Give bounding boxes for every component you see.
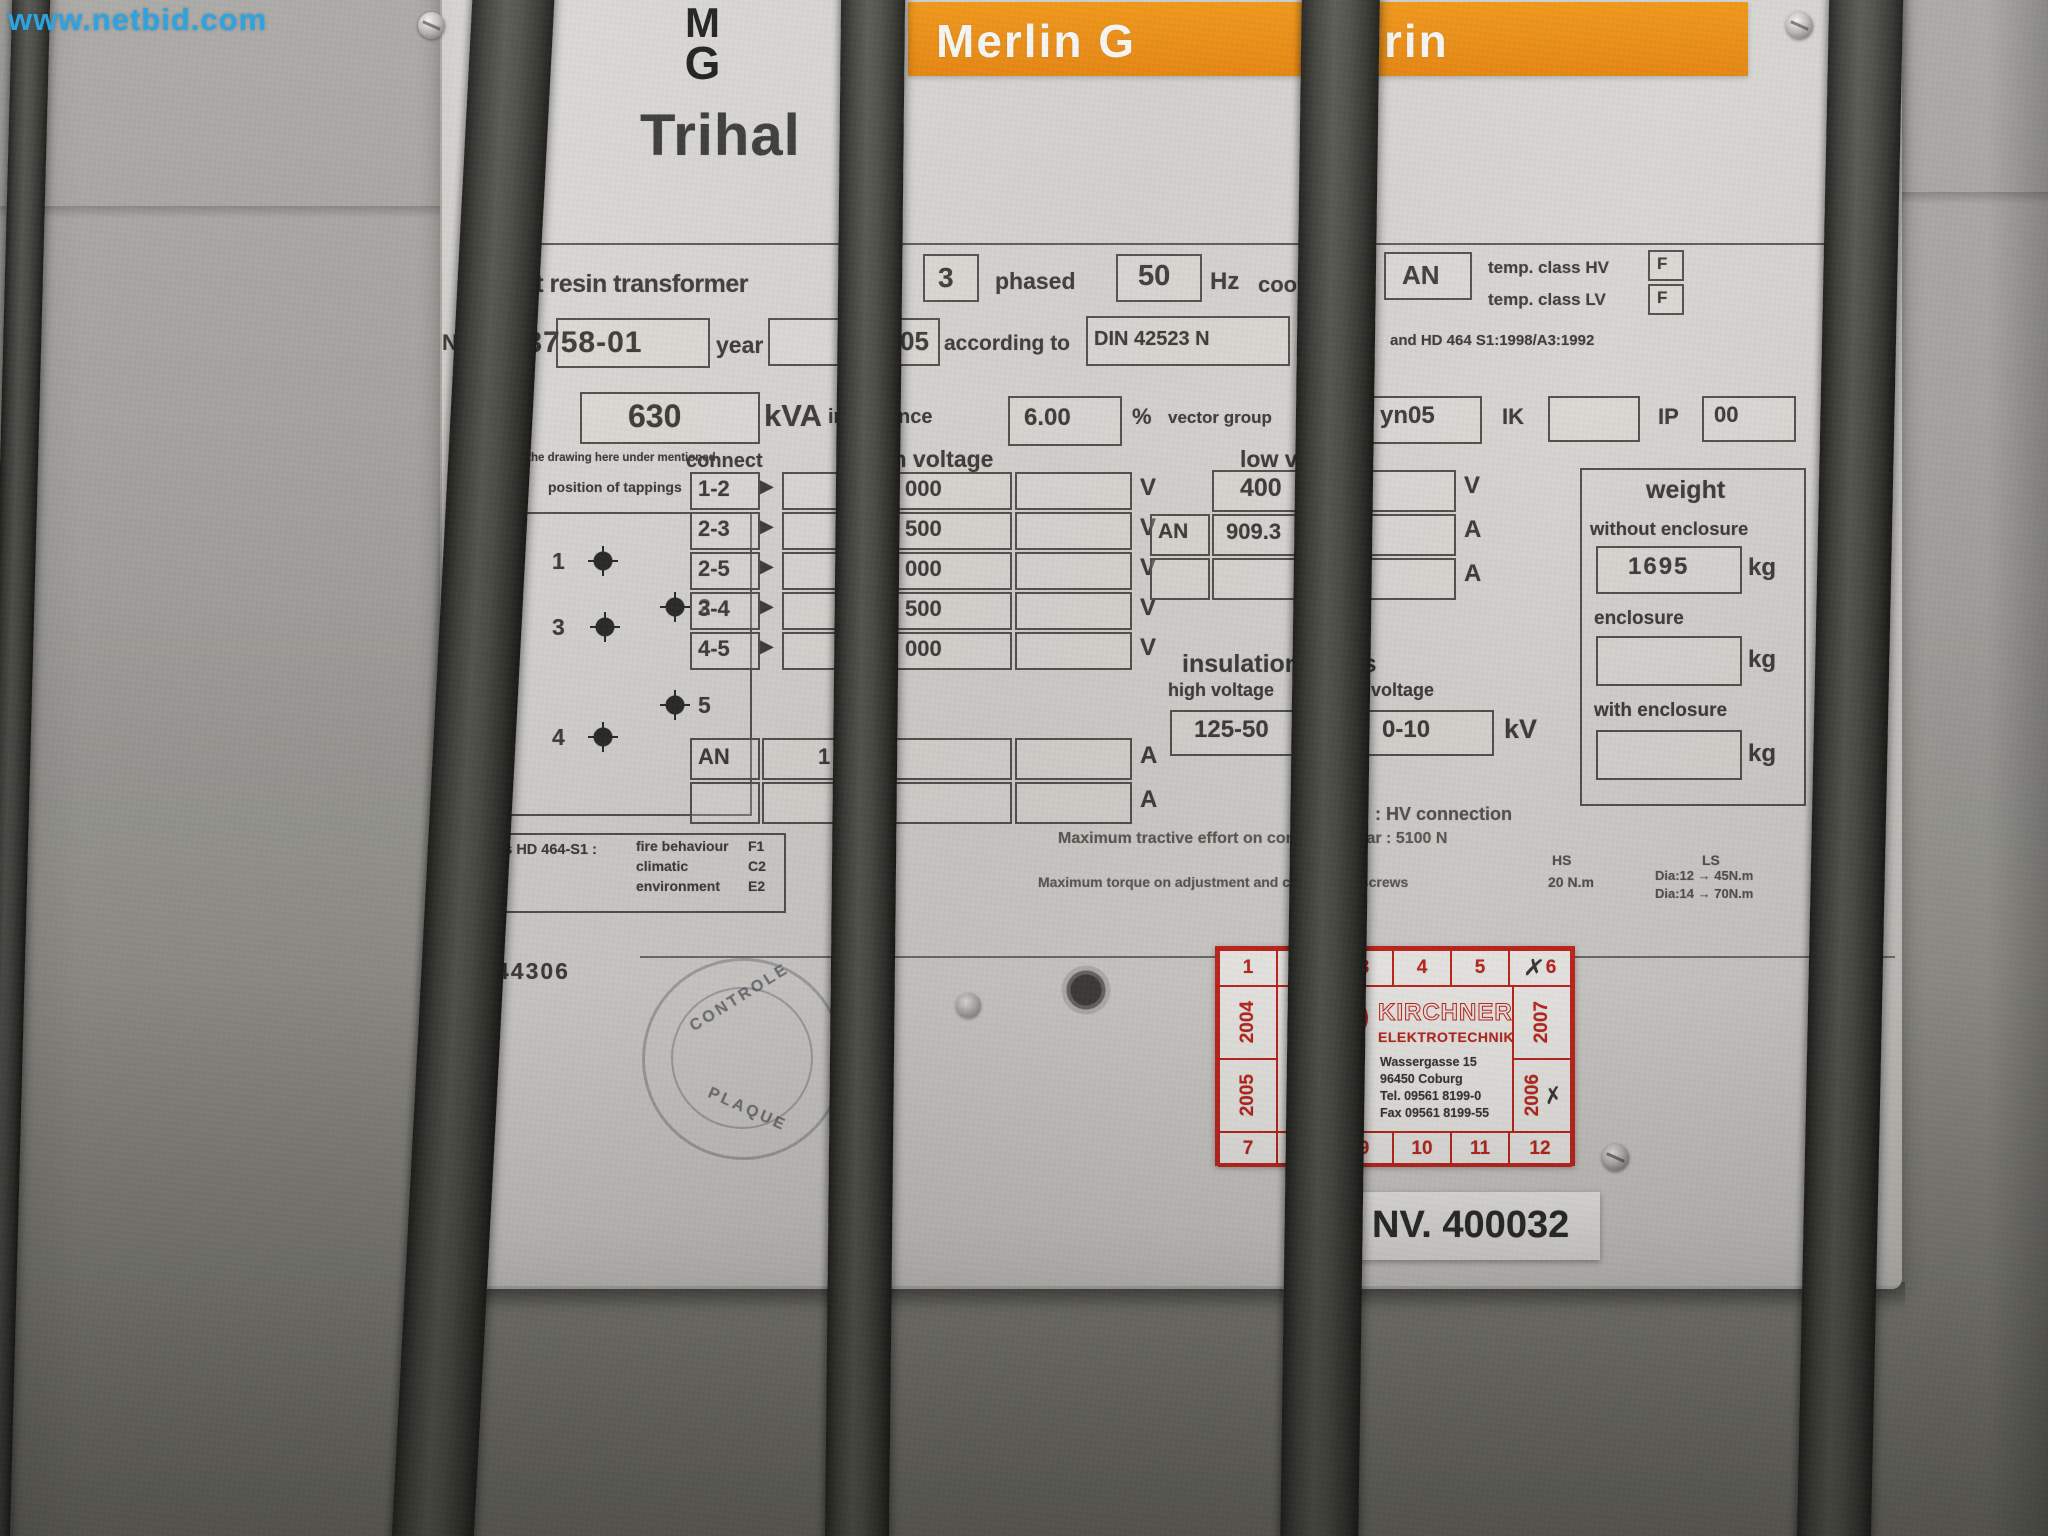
class-row-2-value: C2 <box>748 858 766 874</box>
weight-title: weight <box>1646 476 1725 505</box>
lv-empty-box-a <box>1150 558 1210 600</box>
hv-value-fragment-2: 500 <box>905 516 942 542</box>
hs-label: HS <box>1552 852 1571 868</box>
tap-dot-3 <box>590 612 620 642</box>
product-name: Trihal <box>640 102 801 169</box>
connect-label-3: 2-5 <box>698 556 730 582</box>
class-row-2-name: climatic <box>636 858 688 874</box>
sticker-x-mark-top: ✗ <box>1522 952 1546 984</box>
sticker-year-2006: 2006 ✗ <box>1512 1058 1572 1133</box>
hv-box-b-5 <box>1015 632 1132 670</box>
standard-value: DIN 42523 N <box>1094 328 1210 351</box>
kirchner-company: KIRCHNER <box>1378 999 1513 1027</box>
sticker-cell-12: 12 <box>1508 1131 1572 1167</box>
screw-top-left <box>418 12 445 39</box>
sticker-cell-10: 10 <box>1392 1131 1452 1167</box>
tap-dot-2 <box>660 592 690 622</box>
mounting-hole <box>1058 962 1114 1018</box>
insulation-hv-value: 125-50 <box>1194 716 1269 744</box>
volt-unit-1: V <box>1140 474 1156 502</box>
tap-dot-label-4: 4 <box>552 724 565 751</box>
temp-lv-value: F <box>1657 288 1667 308</box>
hv-current-box-r2c <box>1015 782 1132 824</box>
volt-unit-5: V <box>1140 634 1156 662</box>
connect-arrow-5: ▶ <box>760 636 774 657</box>
lv-amp-unit-1: A <box>1464 516 1481 544</box>
sticker-year-2005-label: 2005 <box>1237 1074 1259 1116</box>
brand-banner-text-left: Merlin G <box>936 14 1136 68</box>
kva-unit: kVA <box>764 398 822 434</box>
hv-value-fragment-4: 500 <box>905 596 942 622</box>
tap-dot-label-1: 1 <box>552 548 565 575</box>
photo-scene: M G Merlin G rin Trihal cast resin trans… <box>0 0 2048 1536</box>
sticker-cell-5: 5 <box>1450 949 1510 987</box>
address-line-1: Wassergasse 15 <box>1380 1055 1477 1069</box>
sticker-num-4: 4 <box>1417 957 1428 979</box>
top-rule <box>492 243 1892 245</box>
sticker-num-6: 6 <box>1546 957 1557 979</box>
insulation-hv-label: high voltage <box>1168 680 1274 701</box>
tap-dot-5 <box>660 690 690 720</box>
screw-bottom-right <box>1602 1144 1629 1171</box>
cooling-label-fragment: coo <box>1258 272 1297 298</box>
sticker-x-mark-right: ✗ <box>1542 1081 1565 1110</box>
insulation-lv-fragment: 0-10 <box>1382 716 1430 744</box>
weight-kg-3: kg <box>1748 740 1776 768</box>
hv-box-b-1 <box>1015 472 1132 510</box>
merlin-gerin-logo: M G <box>655 0 750 92</box>
according-label: according to <box>944 332 1070 356</box>
vector-group-label: vector group <box>1168 408 1272 428</box>
screw-top-right <box>1786 12 1813 39</box>
netbid-watermark: www.netbid.com <box>8 2 267 38</box>
rivet <box>956 993 981 1018</box>
ip-value: 00 <box>1714 402 1738 428</box>
weight-enclosure-label: enclosure <box>1594 608 1684 630</box>
hv-an-value-box2 <box>1015 738 1132 780</box>
connect-header: connect <box>686 450 763 473</box>
connect-arrow-4: ▶ <box>760 596 774 617</box>
sticker-year-2007-label: 2007 <box>1531 1001 1553 1043</box>
class-row-1-name: fire behaviour <box>636 838 729 854</box>
sticker-num-5: 5 <box>1475 957 1486 979</box>
lv-an-label: AN <box>1158 520 1188 544</box>
dia-note-1: Dia:12 → 45N.m <box>1655 868 1753 883</box>
ik-box <box>1548 396 1640 442</box>
ik-label: IK <box>1502 404 1524 430</box>
sticker-cell-7: 7 <box>1218 1131 1278 1167</box>
class-row-3-value: E2 <box>748 878 765 894</box>
connect-label-5: 4-5 <box>698 636 730 662</box>
brand-banner-text-right: rin <box>1384 14 1449 68</box>
weight-kg-1: kg <box>1748 554 1776 582</box>
sticker-num-11: 11 <box>1470 1138 1490 1160</box>
torque-value: 20 N.m <box>1548 874 1594 890</box>
sticker-year-2005: 2005 <box>1218 1058 1278 1133</box>
connect-label-1: 1-2 <box>698 476 730 502</box>
inspection-stamp: CONTROLE PLAQUE <box>642 958 844 1160</box>
kirchner-company-sub: ELEKTROTECHNIK <box>1378 1029 1514 1045</box>
hv-connection-note: : HV connection <box>1375 804 1512 825</box>
sticker-year-2004-label: 2004 <box>1237 1001 1259 1043</box>
hv-value-fragment-3: 000 <box>905 556 942 582</box>
insulation-unit: kV <box>1504 714 1537 745</box>
address-line-2: 96450 Coburg <box>1380 1072 1463 1086</box>
weight-with-label: with enclosure <box>1594 700 1727 722</box>
sticker-year-2004: 2004 <box>1218 985 1278 1060</box>
position-of-tappings-label: position of tappings <box>548 479 682 495</box>
weight-without-label: without enclosure <box>1590 518 1748 540</box>
impedance-unit: % <box>1132 404 1152 430</box>
sticker-cell-1: 1 <box>1218 949 1278 987</box>
weight-with-box <box>1596 730 1742 780</box>
ls-label: LS <box>1702 852 1720 868</box>
hv-an-value-fragment: 1 <box>818 744 830 770</box>
phases-value: 3 <box>938 262 954 294</box>
connect-arrow-2: ▶ <box>760 516 774 537</box>
nameplate-content: M G Merlin G rin Trihal cast resin trans… <box>0 0 2048 1536</box>
vector-group-fragment: yn05 <box>1380 402 1435 430</box>
kva-value: 630 <box>628 398 681 435</box>
frequency-value: 50 <box>1138 260 1170 293</box>
inventory-number: NV. 400032 <box>1372 1204 1569 1247</box>
sticker-year-2006-label: 2006 <box>1522 1074 1544 1116</box>
temp-class-hv-label: temp. class HV <box>1488 258 1609 278</box>
address-line-3: Tel. 09561 8199-0 <box>1380 1089 1481 1103</box>
year-label: year <box>716 332 763 359</box>
standard2-value: and HD 464 S1:1998/A3:1992 <box>1390 332 1594 349</box>
hv-value-fragment-1: 000 <box>905 476 942 502</box>
dia-note-2: Dia:14 → 70N.m <box>1655 886 1753 901</box>
hv-current-box-r2a <box>690 782 760 824</box>
sticker-num-7: 7 <box>1243 1138 1254 1160</box>
temp-hv-value: F <box>1657 254 1667 274</box>
lv-voltage-value: 400 <box>1240 474 1282 503</box>
phased-label: phased <box>995 268 1076 295</box>
tap-dot-label-3: 3 <box>552 614 565 641</box>
tap-dot-1 <box>588 546 618 576</box>
sticker-num-12: 12 <box>1529 1138 1550 1160</box>
weight-enclosure-box <box>1596 636 1742 686</box>
hv-an-label: AN <box>698 744 730 770</box>
temp-class-lv-label: temp. class LV <box>1488 290 1606 310</box>
sticker-num-10: 10 <box>1411 1138 1432 1160</box>
kirchner-sticker: 1 2 3 4 5 ✗ 6 2004 2005 2007 2006 ✗ 7 8 … <box>1215 946 1575 1166</box>
connect-label-2: 2-3 <box>698 516 730 542</box>
tractive-note: Maximum tractive effort on connection ba… <box>1058 830 1447 848</box>
logo-g-glyph: G <box>655 40 750 86</box>
address-line-4: Fax 09561 8199-55 <box>1380 1106 1489 1120</box>
impedance-value: 6.00 <box>1024 404 1071 432</box>
connect-label-4: 3-4 <box>698 596 730 622</box>
lv-volt-unit: V <box>1464 472 1480 500</box>
connect-arrow-3: ▶ <box>760 556 774 577</box>
sticker-cell-11: 11 <box>1450 1131 1510 1167</box>
hv-value-fragment-5: 000 <box>905 636 942 662</box>
lv-amp-unit-2: A <box>1464 560 1481 588</box>
connect-arrow-1: ▶ <box>760 476 774 497</box>
amp-unit-2: A <box>1140 786 1157 814</box>
cooling-value: AN <box>1402 260 1440 291</box>
tap-dot-label-5: 5 <box>698 692 711 719</box>
amp-unit-1: A <box>1140 742 1157 770</box>
hv-box-b-2 <box>1015 512 1132 550</box>
sticker-num-1: 1 <box>1243 957 1254 979</box>
tap-dot-4 <box>588 722 618 752</box>
ip-label: IP <box>1658 404 1679 430</box>
sticker-cell-4: 4 <box>1392 949 1452 987</box>
hv-box-b-4 <box>1015 592 1132 630</box>
hv-box-b-3 <box>1015 552 1132 590</box>
class-row-3-name: environment <box>636 878 720 894</box>
freq-unit: Hz <box>1210 268 1239 296</box>
class-row-1-value: F1 <box>748 838 764 854</box>
weight-without-value: 1695 <box>1628 553 1689 581</box>
lv-current-value: 909.3 <box>1226 519 1281 545</box>
sticker-cell-6: ✗ 6 <box>1508 949 1572 987</box>
year-value-fragment: 05 <box>900 326 929 357</box>
weight-kg-2: kg <box>1748 646 1776 674</box>
sticker-year-2007: 2007 <box>1512 985 1572 1060</box>
